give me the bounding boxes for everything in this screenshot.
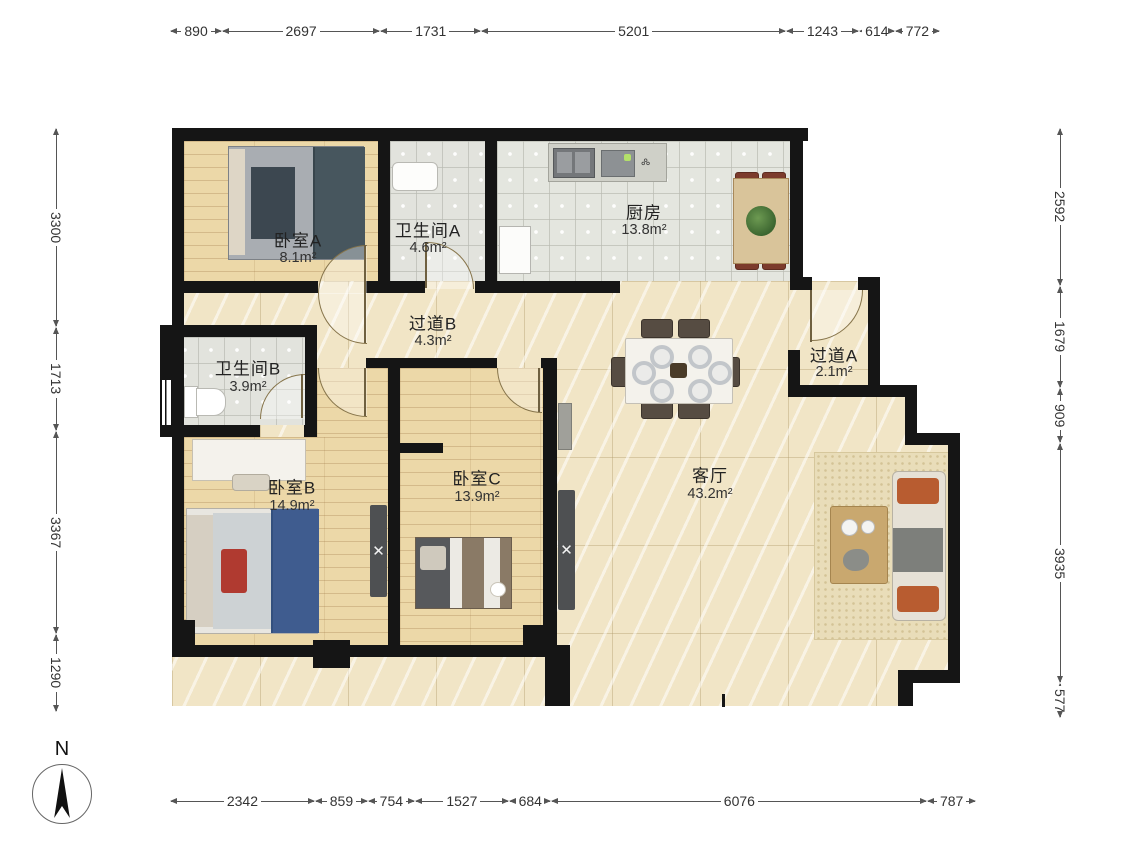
wall [305, 325, 317, 437]
room-area-bathroom-a: 4.6m² [409, 240, 446, 256]
plate-icon [708, 361, 732, 385]
dimension-segment: 2342 [170, 792, 315, 810]
bed-pillow [187, 515, 213, 627]
wall [790, 128, 803, 290]
bed-pillow [420, 546, 446, 570]
dimension-chain-right: 2592 1679 909 3935 577 [1050, 128, 1070, 718]
fridge-icon [499, 226, 531, 274]
compass-dial [32, 764, 92, 824]
room-label-bathroom-b: 卫生间B [215, 355, 281, 380]
room-area-hallway-a: 2.1m² [815, 364, 852, 380]
wall [388, 358, 400, 645]
sofa-pillow [897, 478, 939, 504]
desk-chair [232, 474, 270, 491]
room-label-kitchen: 厨房 [626, 199, 662, 224]
room-area-living-room: 43.2m² [687, 486, 732, 502]
bed-stripe [450, 538, 462, 608]
wall [366, 281, 425, 293]
room-area-kitchen: 13.8m² [621, 222, 666, 238]
room-area-bedroom-b: 14.9m² [269, 498, 314, 514]
wall [788, 385, 868, 397]
bed-icon [415, 537, 512, 609]
cabinet-icon [558, 403, 572, 450]
cup-icon [861, 520, 875, 534]
outside-area [917, 385, 960, 433]
sofa-pillow [897, 586, 939, 612]
outside-area [803, 128, 880, 277]
bed-icon [186, 508, 318, 634]
dimension-segment: 3367 [46, 431, 66, 634]
outside-area [913, 683, 960, 706]
dimension-segment: 614 [859, 22, 895, 40]
door-leaf [364, 245, 366, 293]
room-label-bedroom-a: 卧室A [274, 227, 322, 252]
dimension-segment: 909 [1050, 388, 1070, 443]
wall [485, 128, 497, 293]
room-area-bedroom-a: 8.1m² [279, 250, 316, 266]
wall [160, 325, 317, 337]
dimension-segment: 1679 [1050, 286, 1070, 388]
bed-blanket [271, 509, 319, 633]
dimension-segment: 3300 [46, 128, 66, 327]
tv-cabinet-icon: ✕ [558, 490, 575, 610]
room-label-hallway-b: 过道B [409, 310, 457, 335]
dimension-segment: 1731 [380, 22, 481, 40]
wall [400, 443, 443, 453]
dimension-segment: 1713 [46, 327, 66, 430]
coffee-table [830, 506, 888, 584]
dimension-segment: 772 [895, 22, 940, 40]
wall-column [523, 625, 545, 657]
compass-needle-icon [48, 768, 76, 818]
dimension-segment: 577 [1050, 683, 1070, 718]
dining-chair [678, 319, 710, 338]
dimension-segment: 2697 [222, 22, 380, 40]
dimension-segment: 890 [170, 22, 222, 40]
wardrobe-icon: ✕ [370, 505, 387, 597]
dimension-segment: 1527 [415, 792, 509, 810]
toilet-icon [196, 388, 226, 416]
dimension-segment: 754 [368, 792, 415, 810]
compass-north-label: N [30, 738, 94, 762]
plate-icon [632, 361, 656, 385]
sink-basin [557, 152, 572, 173]
room-label-bedroom-b: 卧室B [268, 474, 316, 499]
door-leaf [301, 374, 303, 418]
outside-area [880, 281, 960, 385]
sink-icon [553, 148, 595, 178]
sofa-throw [893, 528, 943, 572]
kitchen-counter: 🝆 [548, 143, 667, 182]
plate-icon [650, 379, 674, 403]
wall [868, 277, 880, 390]
window [160, 380, 172, 428]
wall [172, 128, 184, 657]
dimension-segment: 1290 [46, 634, 66, 712]
dimension-segment: 3935 [1050, 443, 1070, 683]
wall [790, 277, 812, 290]
compass: N [30, 738, 94, 834]
wall [366, 358, 497, 368]
wall-column [172, 620, 195, 657]
room-area-bathroom-b: 3.9m² [229, 379, 266, 395]
floor-plan: 🝆 ✕ ✕ [0, 0, 1125, 844]
decor-icon [843, 549, 869, 571]
room-label-bedroom-c: 卧室C [452, 465, 501, 490]
stove-knob [624, 154, 631, 161]
dimension-segment: 5201 [481, 22, 786, 40]
dimension-segment: 6076 [551, 792, 927, 810]
dimension-segment: 787 [927, 792, 976, 810]
dimension-segment: 859 [315, 792, 368, 810]
centerpiece-icon [670, 363, 687, 378]
dining-chair [641, 319, 673, 338]
bed-stripe [484, 538, 500, 608]
room-label-hallway-a: 过道A [810, 342, 858, 367]
wall [172, 645, 388, 657]
dimension-chain-bottom: 2342 859 754 1527 684 6076 787 [170, 792, 976, 810]
cup-icon [841, 519, 858, 536]
sofa-icon [892, 471, 946, 621]
bathtub-icon [392, 162, 438, 191]
sink-basin [575, 152, 590, 173]
door-leaf [538, 368, 540, 412]
door-leaf [364, 368, 366, 416]
dimension-segment: 1243 [786, 22, 859, 40]
wall [948, 433, 960, 672]
wall [475, 281, 620, 293]
room-area-hallway-b: 4.3m² [414, 333, 451, 349]
door-leaf [810, 290, 812, 342]
burner-icon: 🝆 [641, 156, 659, 168]
room-label-living-room: 客厅 [692, 462, 728, 487]
door-leaf [364, 293, 366, 343]
wall [543, 358, 557, 645]
dimension-segment: 684 [509, 792, 551, 810]
room-label-bathroom-a: 卫生间A [395, 217, 461, 242]
room-area-bedroom-c: 13.9m² [454, 489, 499, 505]
pet-icon [490, 582, 506, 597]
wall [898, 670, 960, 683]
window-mullion [722, 694, 725, 707]
wall [545, 645, 570, 706]
stove-icon [601, 150, 635, 177]
wall [905, 385, 917, 433]
plate-icon [688, 345, 712, 369]
wall [172, 281, 318, 293]
dimension-segment: 2592 [1050, 128, 1070, 286]
dimension-chain-top: 890 2697 1731 5201 1243 614 772 [170, 22, 940, 40]
dining-table [625, 338, 733, 404]
plate-icon [688, 379, 712, 403]
plant-icon [746, 206, 776, 236]
bed-headboard [229, 149, 245, 255]
wall-column [313, 640, 350, 668]
kitchen-table [733, 178, 789, 264]
bed-red-pillow [221, 549, 247, 593]
wall [378, 128, 390, 293]
wall [898, 683, 913, 706]
dimension-chain-left: 3300 1713 3367 1290 [46, 128, 66, 712]
wall [304, 425, 317, 437]
wall [160, 425, 260, 437]
